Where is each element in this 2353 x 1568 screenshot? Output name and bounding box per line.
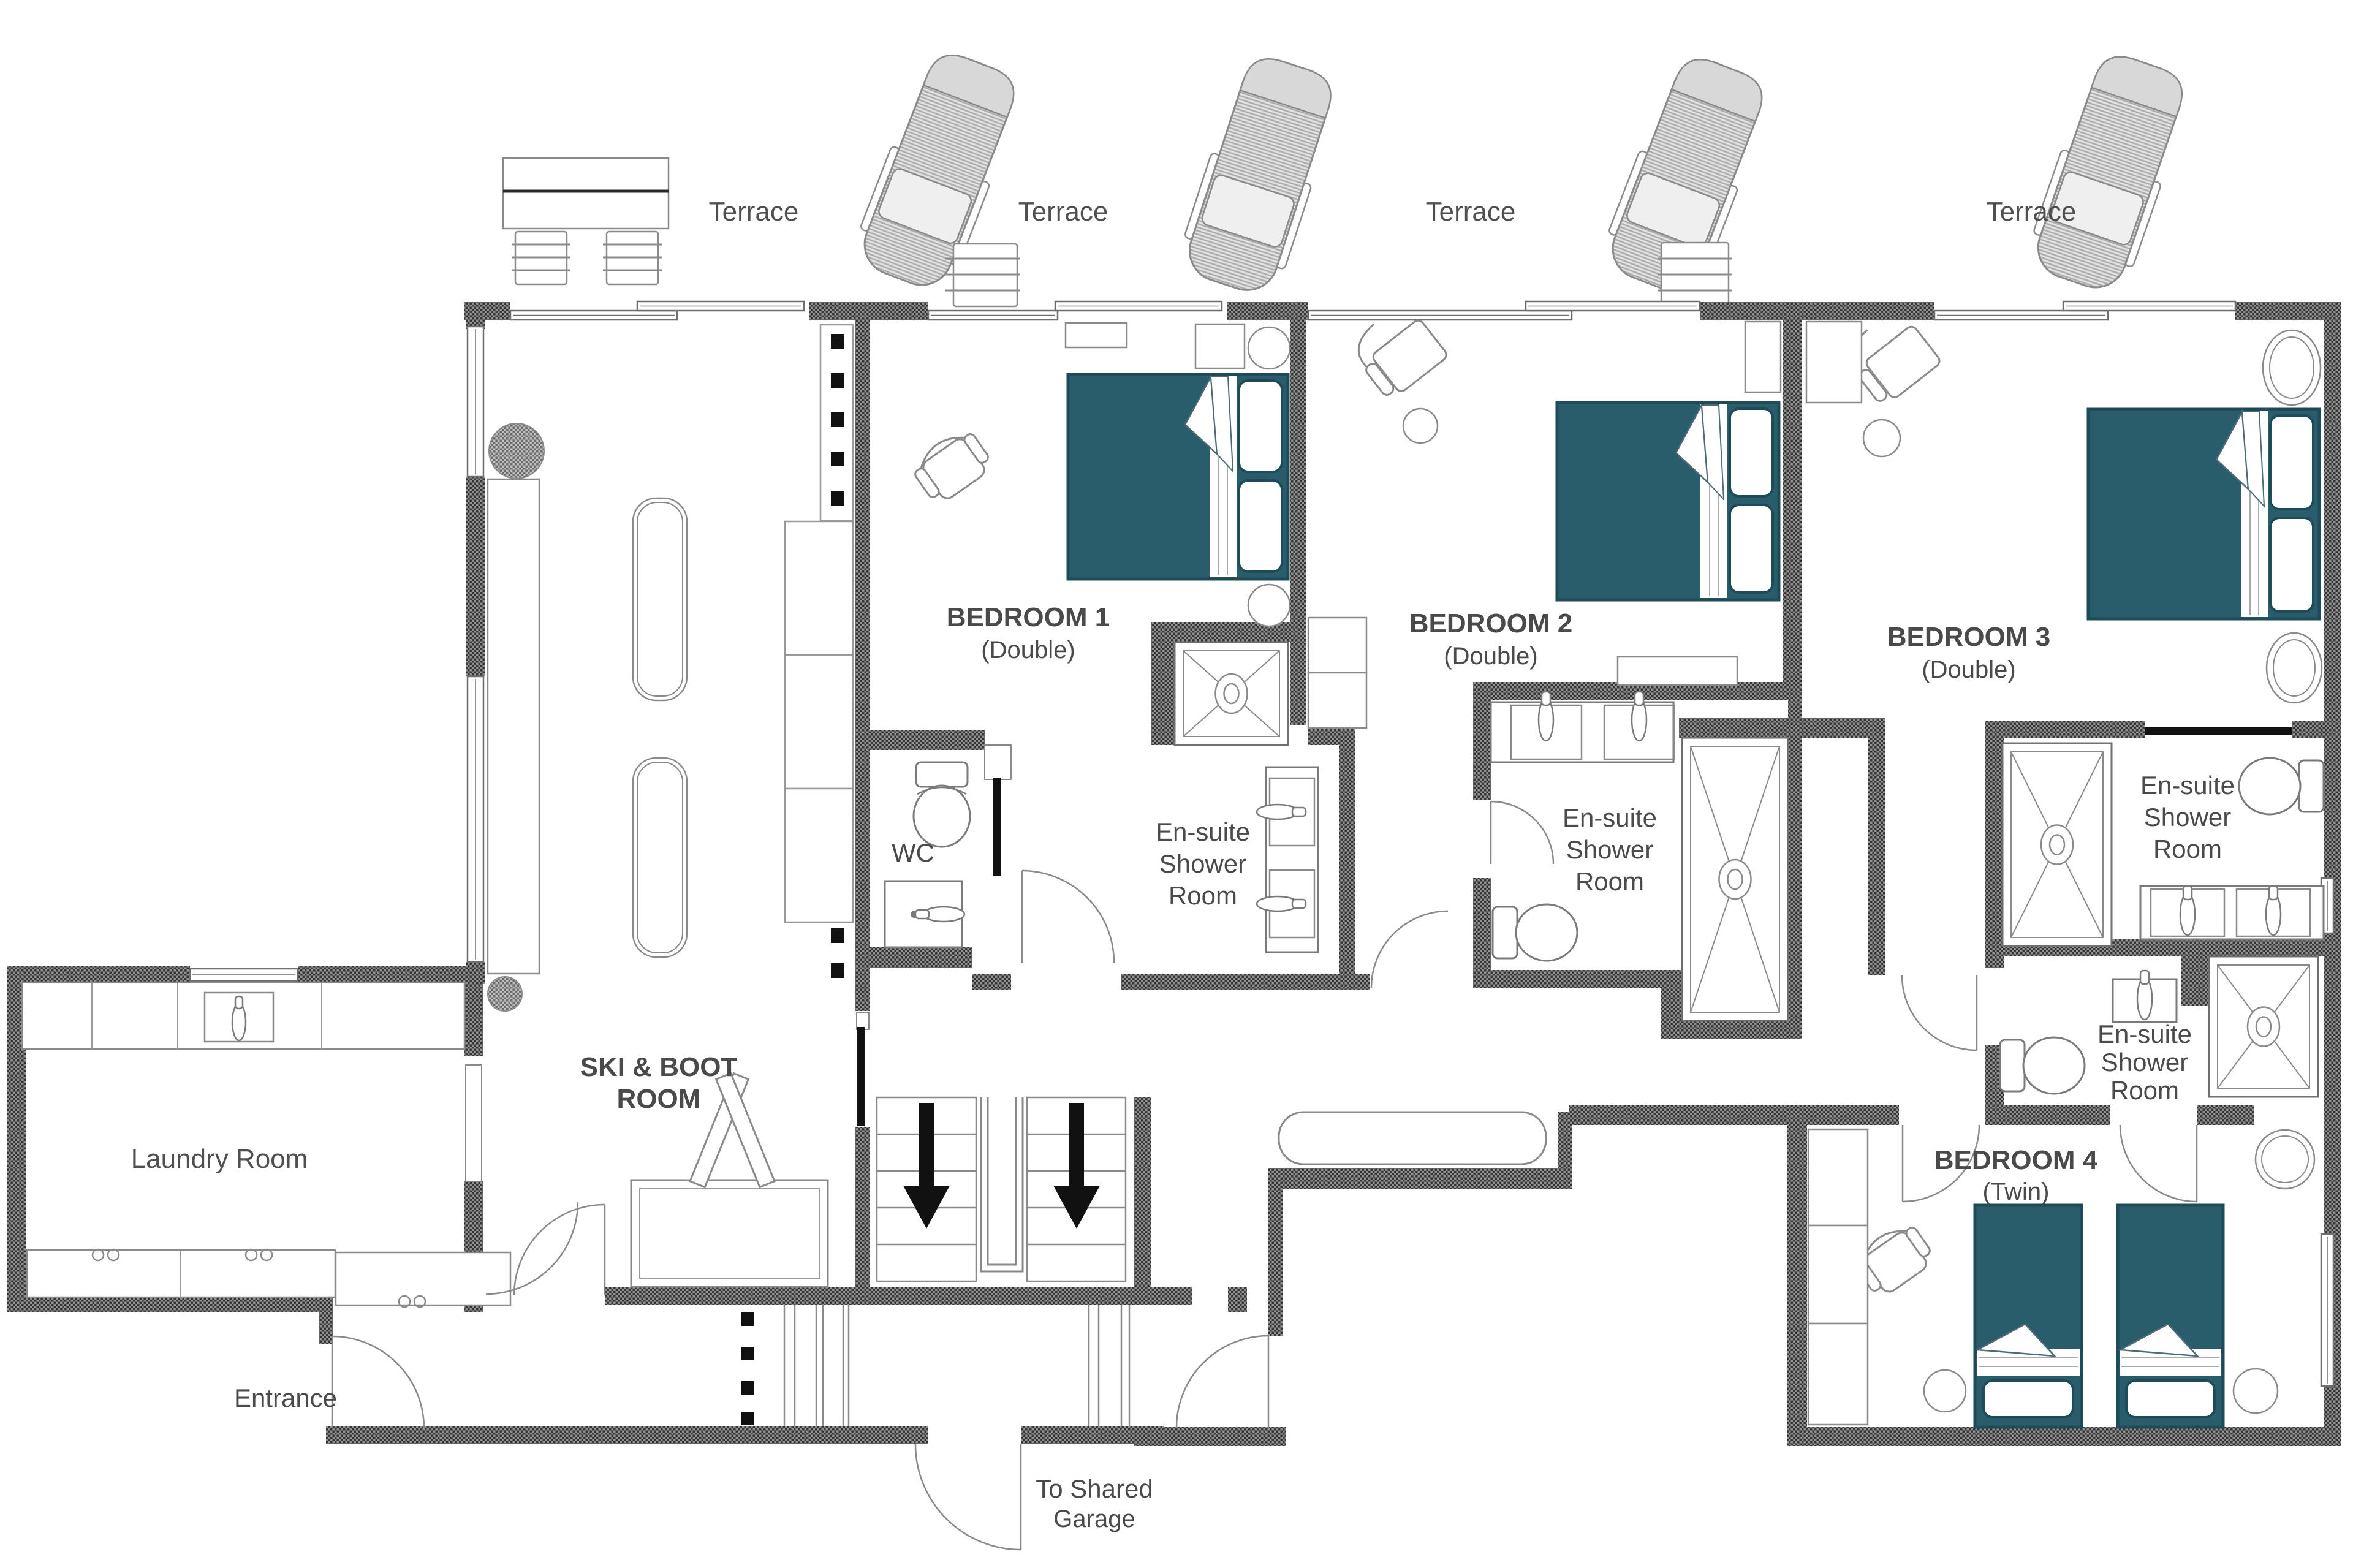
- svg-text:Terrace: Terrace: [709, 197, 799, 227]
- svg-text:Laundry Room: Laundry Room: [131, 1144, 308, 1174]
- svg-text:Room: Room: [2110, 1076, 2179, 1105]
- svg-text:Terrace: Terrace: [1018, 197, 1108, 227]
- svg-text:Terrace: Terrace: [1987, 197, 2077, 227]
- svg-text:BEDROOM 4: BEDROOM 4: [1934, 1145, 2098, 1175]
- svg-text:Garage: Garage: [1053, 1506, 1135, 1532]
- svg-text:Room: Room: [2153, 835, 2222, 863]
- svg-text:En-suite: En-suite: [2140, 771, 2235, 800]
- svg-text:En-suite: En-suite: [1563, 803, 1657, 832]
- svg-text:En-suite: En-suite: [2097, 1020, 2192, 1048]
- svg-text:Shower: Shower: [2144, 803, 2231, 831]
- svg-text:(Double): (Double): [1922, 656, 2015, 683]
- svg-text:Shower: Shower: [2101, 1048, 2188, 1077]
- svg-text:WC: WC: [892, 838, 934, 867]
- svg-text:SKI & BOOT: SKI & BOOT: [580, 1052, 738, 1082]
- svg-text:(Double): (Double): [1444, 643, 1537, 670]
- svg-text:BEDROOM 1: BEDROOM 1: [947, 602, 1110, 632]
- svg-text:Room: Room: [1169, 881, 1237, 910]
- svg-text:BEDROOM 3: BEDROOM 3: [1887, 622, 2050, 652]
- svg-text:Shower: Shower: [1566, 835, 1653, 864]
- svg-text:Room: Room: [1575, 867, 1644, 896]
- svg-text:En-suite: En-suite: [1156, 817, 1250, 846]
- svg-text:(Double): (Double): [981, 637, 1075, 664]
- svg-text:ROOM: ROOM: [617, 1084, 701, 1114]
- svg-text:Shower: Shower: [1159, 849, 1246, 878]
- svg-text:To Shared: To Shared: [1036, 1474, 1153, 1503]
- svg-text:Entrance: Entrance: [234, 1384, 337, 1412]
- svg-text:(Twin): (Twin): [1983, 1178, 2050, 1205]
- svg-text:BEDROOM 2: BEDROOM 2: [1409, 608, 1572, 638]
- svg-text:Terrace: Terrace: [1426, 197, 1516, 227]
